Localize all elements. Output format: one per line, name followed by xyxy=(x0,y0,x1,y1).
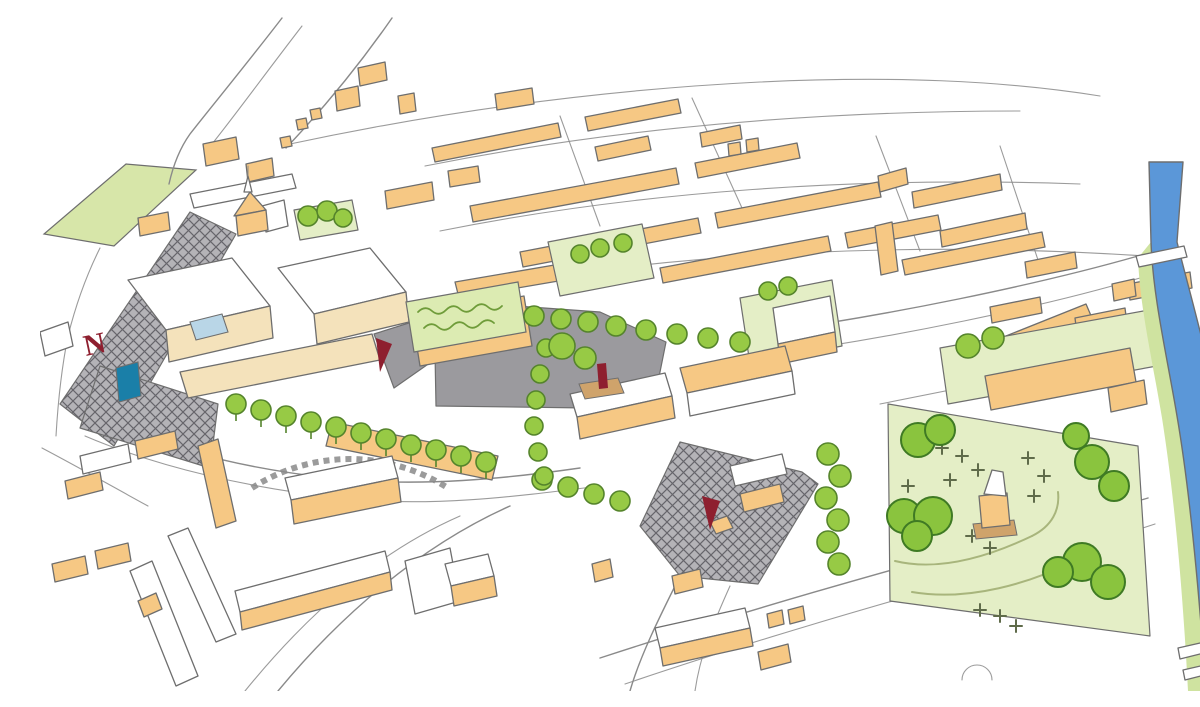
masterplan-canvas: N xyxy=(40,16,1200,691)
masterplan-sketch: N xyxy=(40,16,1200,691)
glazed-entrance xyxy=(116,362,141,402)
